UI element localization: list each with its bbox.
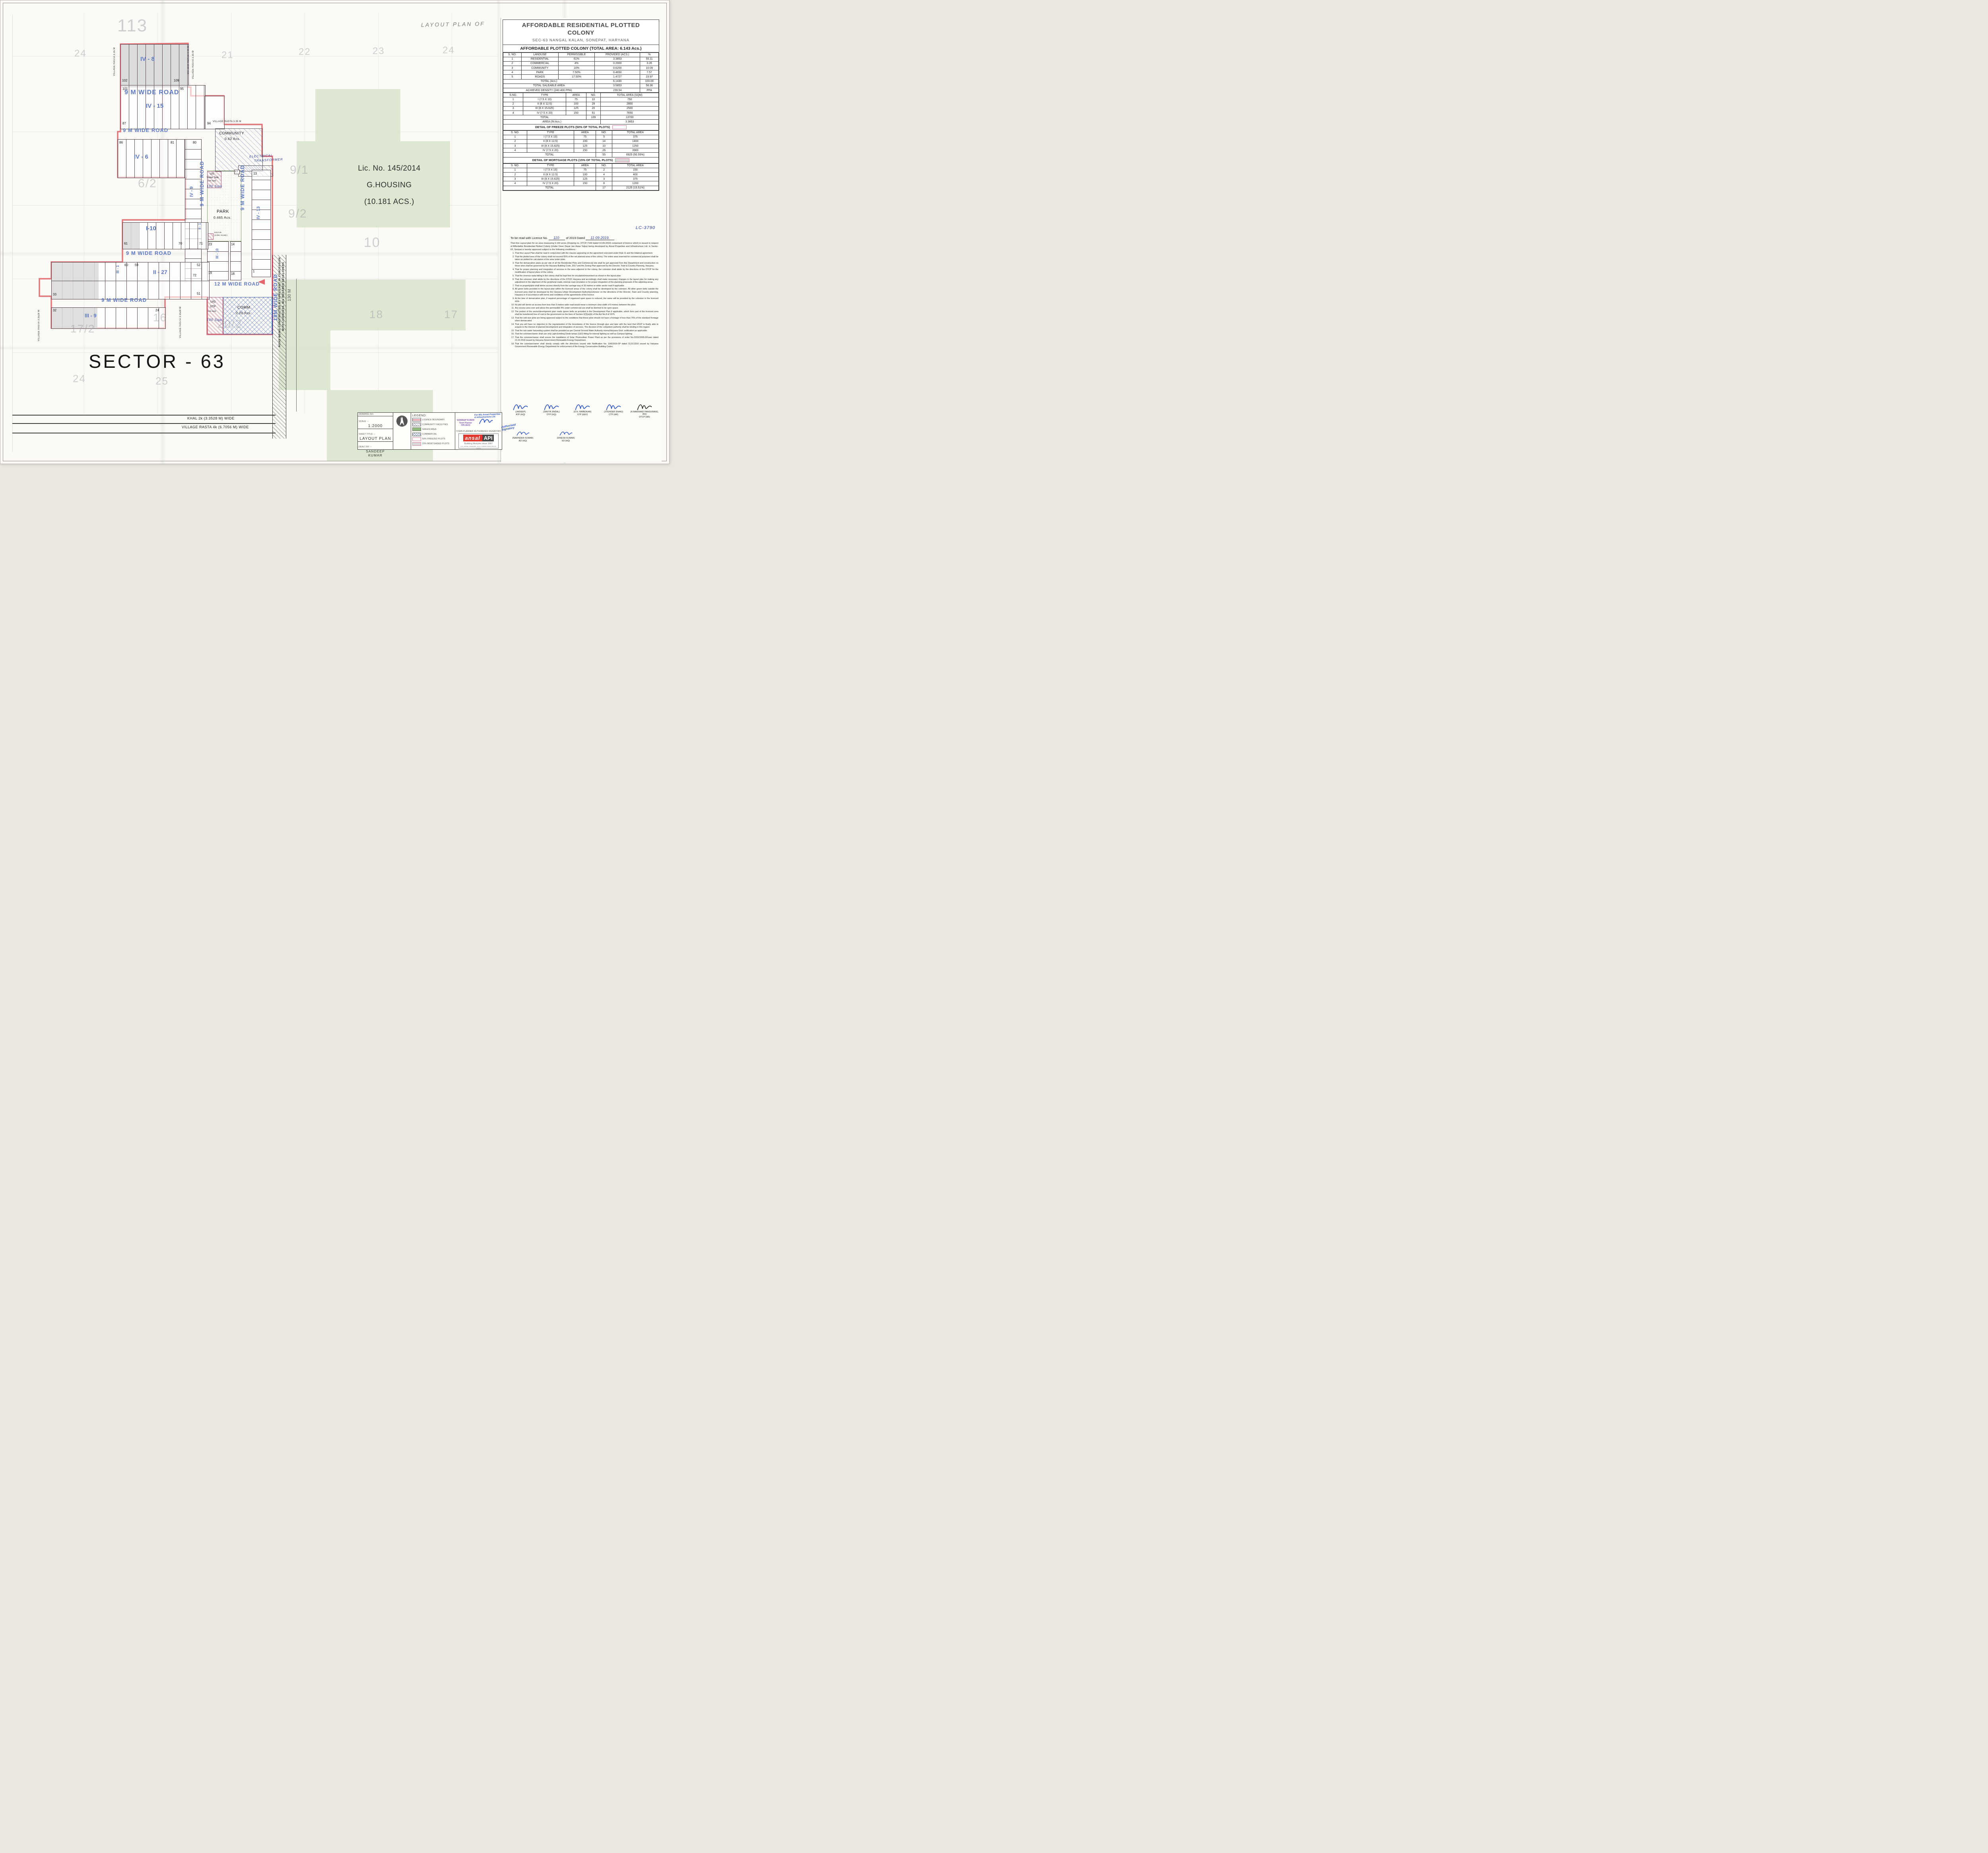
map-label: (100 SqM) [208,180,216,182]
ansal-address: 115, ANSAL BHAWAN, 16-K.G.MARG NEW DELHI… [459,445,498,449]
licence-no-handwritten: 110· [549,236,565,240]
map-label: WITH LICENCESS. M/s REGARDS DEVELOPERS [282,262,285,331]
signature-squiggle-icon [605,403,622,411]
north-arrow-cell: N [393,413,411,449]
svg-text:N: N [400,417,403,421]
licence-no-line: Lic. No. 145/2014 [334,164,445,173]
grid-line [12,352,497,353]
map-label: 12 M WIDE ROAD [214,282,260,286]
map-label: 71 [199,242,203,245]
legend-item: GREEN AREA [412,427,454,431]
condition-item: That the colonizer/owner shall ensure th… [515,336,658,342]
licence-date-handwritten: 11·09·2019. [586,236,614,240]
legend-swatch [412,442,421,446]
condition-item: That you will have no objection to the r… [515,323,658,329]
map-label: 32 [53,309,56,312]
legend-item: LICENCE BOUNDARY [412,418,454,421]
map-label: 80 [193,141,196,144]
licence-no-line: G.HOUSING [334,181,445,190]
plot-types-table: S.NO.TYPEAREANO.TOTAL AREA (SQM)1I (7.5 … [503,93,659,124]
map-label: IV - 9 [190,186,194,197]
condition-item: That this Layout Plan shall be read in c… [515,252,658,255]
landuse-table: S. NO.LANDUSEPERMISSIBLEPROVIDED (ACS.)%… [503,52,659,93]
licence-no-line: (10.181 ACS.) [334,198,445,206]
legend-swatch [412,423,421,426]
map-label: 61 [124,242,128,245]
title-block-left-column: DRAWING NO. SCALE: – 1:2000 SHEET TITLE:… [358,413,393,449]
signature-block: (SAVITA JINDAL) DTP (HQ) [536,403,567,418]
map-label: VILLAGE RASTA 3.3528 M [38,310,40,341]
map-label: 18 [369,309,383,320]
signature-squiggle-icon [543,403,560,411]
khal-line [12,415,276,416]
map-label: 100 Sqm [207,319,222,322]
map-label: III - 1 [116,265,120,274]
condition-item: All green belts provided in the layout p… [515,288,658,297]
legend-swatch [412,418,421,421]
stamp-captions: TOWN PLANNER AUTHORIZED SIGNATORY [456,430,501,433]
dimension-line-130m [296,279,297,412]
ansal-tagline: Building lifestyles since 1967 [459,443,498,445]
signature-block: (JITENDER SIHAG) CTP (HR) [598,403,629,418]
map-label: 14 [231,243,235,246]
conditions-list: That this Layout Plan shall be read in c… [511,252,658,348]
map-label: 100 Sqm [207,185,222,188]
ansal-logo: ansal [463,435,482,441]
green-area [315,89,400,141]
map-label: 9 M WIDE ROAD [101,297,147,303]
map-label: PARK [217,210,229,214]
grid-line [84,12,84,414]
map-label: 23 [373,47,385,56]
map-label: U/G [210,173,214,175]
map-label: 13 [253,172,257,175]
map-label: IV - 6 [134,154,148,160]
map-label: 87 [122,122,126,125]
ansal-api-logo-box: ansal API Building lifestyles since 1967… [458,433,499,449]
signature-block: (JAIDEEP) ATP (HQ) [505,403,536,418]
map-label: 9/1 [290,164,309,176]
signature-block: (NARINDER KUMAR) AD (HQ) [507,430,539,442]
legend-item: COMMERCIAL [412,433,454,436]
signature-squiggle-icon [636,403,653,411]
licence-line: To be read with Licence No. 110· of 2019… [511,236,658,240]
legend-swatch [412,427,421,431]
map-label: E.T. [235,171,238,173]
paper-fold [0,251,497,256]
map-label: IV - 15 [146,103,163,109]
scanned-layout-plan-sheet: KHAL 2k (3.3528 M) WIDE VILLAGE RASTA 4k… [0,0,670,464]
map-label: M.B./V.B. [214,232,222,234]
signature-block: (D.N. NIMBOKAR) STP (E&V) [567,403,598,418]
map-label: 6/2 [138,178,157,190]
drawing-no-label: DRAWING NO. [358,413,393,416]
map-label: VILLAGE RASTA 3.35 M [187,46,190,74]
khal-label: KHAL 2k (3.3528 M) WIDE [187,416,235,420]
condition-item: That the demarcation plans as per site o… [515,262,658,268]
condition-item: Any excess area over and above the permi… [515,307,658,310]
map-label: III - 9 [85,313,97,318]
sheet-title-value: LAYOUT PLAN [359,437,392,441]
map-frame-line [12,15,13,452]
grid-line [452,12,452,414]
handwritten-layout-plan-of: LAYOUT PLAN OF [421,21,485,28]
licence-no-annotation: Lic. No. 145/2014G.HOUSING(10.181 ACS.) [334,164,445,214]
condition-item: That no property/plot shall derive acces… [515,285,658,287]
map-label: I-10 [146,225,156,231]
north-arrow-icon: N [396,415,408,427]
green-area [277,280,466,330]
signature-squiggle-icon [574,403,591,411]
legend-item: COMMUNITY FACILITIES [412,423,454,426]
map-label: 17/2 [70,323,95,334]
signature-row-1: (JAIDEEP) ATP (HQ) (SAVITA JINDAL) DTP (… [505,403,660,418]
signature-squiggle-icon [512,403,529,411]
map-label: VILLAGE RASTA 3.35 M [192,51,194,79]
map-label: TRANSFORMER [254,158,283,163]
map-label: 52 [197,264,200,267]
map-label: 60 [124,264,128,267]
map-label: VILLAGE RASTA 3.35 M [113,47,116,76]
map-label: 19 [208,272,212,275]
api-logo: API [482,435,494,441]
mortgage-swatch [615,158,629,162]
project-title: AFFORDABLE RESIDENTIAL PLOTTEDCOLONY [503,20,659,37]
sector-63-label: SECTOR - 63 [89,350,225,372]
block-iii9 [51,307,166,329]
legend-swatch [412,437,421,441]
map-label: ROAD BEING CONSTRUCTED BY APPLICANT IN C… [279,257,282,347]
map-label: 9 M WIDE ROAD [126,251,171,256]
map-label: 72 [193,274,196,277]
map-label: (100 SqM) [208,311,216,313]
project-table-box: AFFORDABLE RESIDENTIAL PLOTTEDCOLONY SEC… [503,19,659,191]
map-label: IV - 13 [256,206,261,219]
signature-block: (DINESH KUMAR) SD (HQ) [549,430,582,442]
paper-fold [0,346,497,350]
paper-fold [497,0,501,464]
map-label: 9/2 [288,208,307,220]
map-label: 16 [153,312,167,323]
freeze-swatch [612,125,627,129]
map-label: 95 [180,87,184,91]
map-label: 70 [179,242,182,245]
map-label: 9 M WIDE ROAD [199,161,204,206]
scale-value: 1:2000 [359,424,392,428]
notes-intro: That this Layout plan for an area measur… [511,242,658,251]
scale-label: SCALE: – [359,420,369,423]
map-label: (5.0Mt. X5.5Mt.) [214,235,227,237]
right-panel-sheet: AFFORDABLE RESIDENTIAL PLOTTEDCOLONY SEC… [501,18,662,462]
legend-swatch [412,433,421,436]
freeze-band: DETAIL OF FREEZE PLOTS (50% OF TOTAL PLO… [503,124,659,130]
map-label: 102 [122,79,127,82]
map-label: 0.465 Acs. [214,216,231,219]
stamps-cell: SANDEEP KUMAR Town Planner ITPI-05/72 Fo… [455,413,502,449]
map-label: 113 [117,17,148,35]
approval-notes: To be read with Licence No. 110· of 2019… [511,236,658,349]
mortgage-band: DETAIL OF MORTGAGE PLOTS (15% OF TOTAL P… [503,157,659,163]
map-label: Water Tank [207,177,219,179]
map-label: 59 [135,264,138,267]
map-label: 9 M WIDE ROAD [240,165,245,210]
legend-title: LEGEND: [412,414,454,417]
map-label: 86 [119,141,123,144]
map-label: 130 M [287,289,292,301]
map-label: II - 1 [198,223,202,229]
map-label: 0.62 Acs. [225,137,240,141]
condition-item: That the colonizer/owner shall strictly … [515,343,658,349]
sheet-title-label: SHEET TITLE: – [359,433,375,435]
map-label: 24 [443,46,455,55]
for-ansal-stamp: For M/s Ansal Properties & Infrastructur… [474,413,502,419]
map-label: 33 [53,293,56,296]
map-label: 22 [299,47,311,57]
block-iv6 [118,139,187,178]
condition-item: That the odd size plots are being approv… [515,317,658,323]
map-label: 1 [253,270,254,273]
signature-row-2: (NARINDER KUMAR) AD (HQ) (DINESH KUMAR) … [507,430,582,442]
map-label: 9 M WIDE ROAD [123,128,168,133]
map-label: 23 [208,243,212,246]
map-label: COMM. [237,306,251,310]
map-label: 18M WIDE ROAD [273,274,278,321]
condition-item: That for proper planning and integration… [515,268,658,274]
map-label: 94 [207,122,211,125]
map-label: STP [210,305,216,308]
map-label: 0.20 Acs. [236,311,251,315]
map-label: VILLAGE RASTA 3.35 M [213,120,241,123]
freeze-plots-table: S. NO.TYPEAREANO.TOTAL AREA1I (7.5 X 10)… [503,130,659,157]
total-area-bar: AFFORDABLE PLOTTED COLONY (TOTAL AREA: 6… [503,45,659,52]
signature-squiggle-icon [515,430,531,437]
map-label: IV - 8 [140,56,155,62]
legend-item: 15% MORTGAGED PLOTS [412,442,454,446]
dealt-by-label: DEALT BY: – [359,446,371,448]
block-iv13-column [252,170,271,277]
map-label: 25 [155,376,169,386]
rasta-line [12,423,276,424]
condition-item: That the plotted area of the colony shal… [515,256,658,262]
map-label: 10 [364,236,381,249]
block-i10 [122,222,208,249]
map-label: 81 [171,141,174,144]
map-label: COMMUNITY [219,132,244,136]
village-rasta-4k-label: VILLAGE RASTA 4k (6.7056 M) WIDE [182,425,249,429]
map-label: 51 [197,292,200,295]
drawing-title-block: DRAWING NO. SCALE: – 1:2000 SHEET TITLE:… [357,412,502,450]
map-label: III - 10 [215,249,219,259]
block-ii27 [51,262,210,299]
map-label: 9 M WIDE ROAD [124,89,179,96]
map-label: 24 [74,49,87,58]
green-area [279,330,330,390]
condition-item: At the time of demarcation plan, if requ… [515,297,658,303]
block-iv9-column [185,139,202,281]
signature-squiggle-icon [558,430,574,437]
signature-block: (K.MAKRAND PANDURANG, IAS) DTCP (HR) [629,403,660,418]
map-label: VILLAGE RASTA 3.3528 M [179,307,182,338]
condition-item: That the coloniser/owner shall use only … [515,333,658,336]
rasta-line [12,433,276,433]
map-label: II - 27 [153,269,167,275]
condition-item: No plot will derive an access from less … [515,304,658,307]
condition-item: That the colonizer shall abide by the di… [515,278,658,284]
map-label: U/G [210,300,215,303]
mortgage-plots-table: S. NO.TYPEAREANO.TOTAL AREA1I (7.5 X 10)… [503,163,659,190]
map-label: 17 [444,309,458,320]
project-subtitle: SEC-63 NANGAL KALAN, SONEPAT, HARYANA [503,37,659,45]
condition-item: That the revenue rasta falling in the co… [515,275,658,278]
legend: LEGEND: LICENCE BOUNDARY COMMUNITY FACIL… [411,413,455,449]
condition-item: That the rain water harvesting system sh… [515,330,658,332]
town-planner-stamp: SANDEEP KUMAR Town Planner ITPI-05/72 [457,419,474,427]
map-label: 109 [174,79,179,82]
condition-item: The portion of the sector/development pl… [515,311,658,317]
map-label: 21 [221,51,234,60]
handwritten-lc-number: LC-3790 [636,225,655,230]
dealt-by-value: SANDEEP KUMAR [359,449,392,457]
map-label: 18 [231,272,235,276]
legend-item: 50% FREEZED PLOTS [412,437,454,441]
map-label: 24 [73,373,86,384]
